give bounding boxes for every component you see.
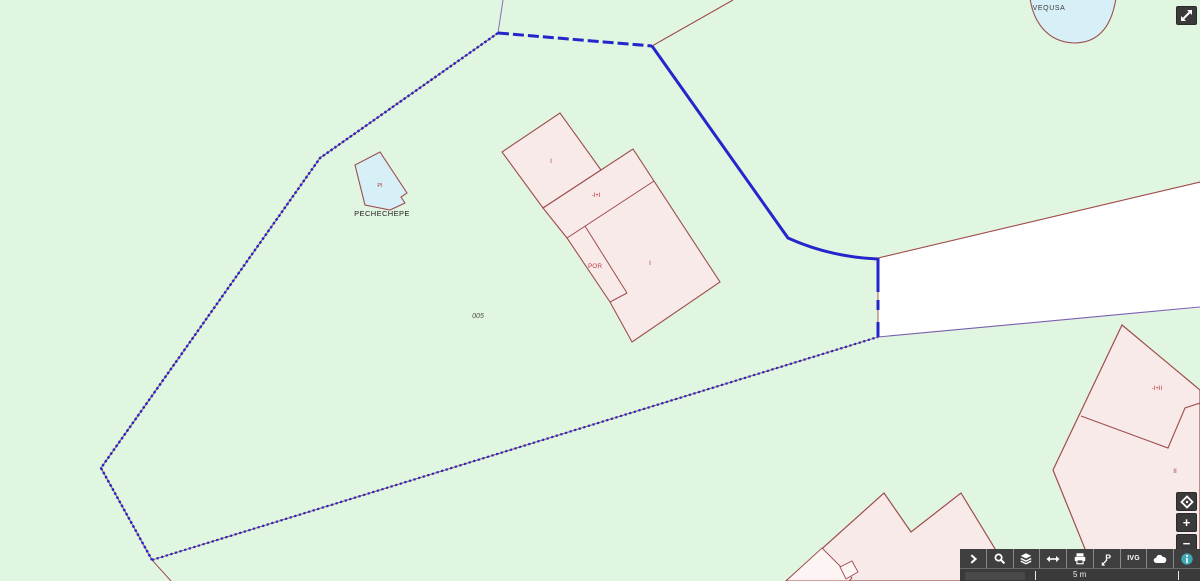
cloud-icon (1153, 553, 1167, 565)
ivg-button[interactable]: IVG (1121, 549, 1147, 568)
info-icon (1180, 552, 1194, 566)
building-a-floors-label: I (550, 158, 552, 165)
map-viewer: VEQUSA PECHECHEPE PI I -I+I POR I 005 -I… (0, 0, 1200, 581)
map-toolbar: P IVG (960, 549, 1200, 568)
scale-strip: 5 m (960, 568, 1200, 581)
zoom-in-label: + (1183, 516, 1191, 529)
building-se-floors-label: -I+II (1152, 386, 1163, 392)
layers-button[interactable] (1014, 549, 1040, 568)
search-button[interactable] (987, 549, 1013, 568)
fullscreen-expand-icon (1180, 9, 1193, 22)
scale-bar: 5 m (1035, 569, 1185, 581)
parcel-number-label: 005 (472, 313, 484, 320)
info-button[interactable] (1174, 549, 1200, 568)
scale-tick-left (1035, 571, 1036, 580)
pond-name-label: VEQUSA (1033, 5, 1066, 12)
building-main-floors-label: I (649, 260, 651, 267)
scale-tick-right (1178, 571, 1179, 580)
fullscreen-button[interactable] (1176, 6, 1197, 25)
building-strip-floors-label: -I+I (592, 193, 601, 199)
chevron-right-icon (967, 553, 979, 565)
water-parcel-name-label: PECHECHEPE (354, 209, 410, 218)
search-icon (993, 552, 1006, 565)
panel-expand-button[interactable] (960, 549, 986, 568)
scale-strip-left-text (965, 572, 1025, 580)
identify-parcel-button[interactable]: P (1094, 549, 1120, 568)
ivg-label: IVG (1127, 555, 1140, 562)
water-parcel-code-label: PI (377, 183, 383, 189)
scale-distance-label: 5 m (1073, 570, 1086, 579)
layers-icon (1019, 552, 1033, 565)
overview-map-button[interactable] (1147, 549, 1173, 568)
measure-distance-button[interactable] (1040, 549, 1066, 568)
building-se-lower-floors-label: II (1173, 468, 1177, 475)
pan-extent-button[interactable] (1176, 492, 1197, 511)
measure-arrows-icon (1046, 553, 1060, 565)
printer-icon (1073, 552, 1087, 565)
zoom-in-button[interactable]: + (1176, 513, 1197, 532)
print-button[interactable] (1067, 549, 1093, 568)
identify-p-arrow-icon: P (1100, 552, 1114, 566)
map-canvas[interactable]: VEQUSA PECHECHEPE PI I -I+I POR I 005 -I… (0, 0, 1200, 581)
building-por-label: POR (588, 263, 602, 270)
pan-diamond-icon (1180, 495, 1194, 509)
